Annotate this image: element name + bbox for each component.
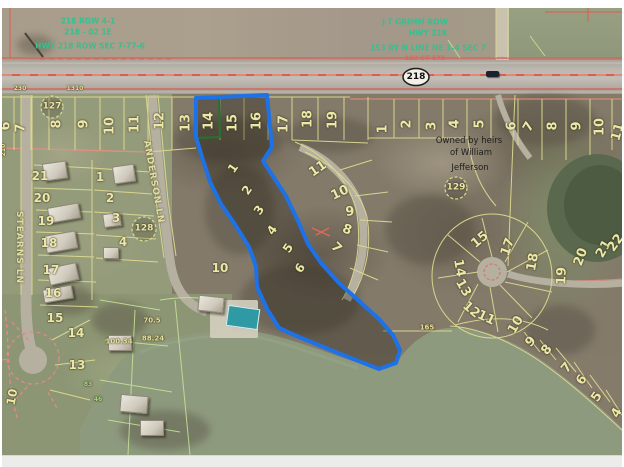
survey-note-tl-line1: 218 RGW 4-1 bbox=[61, 17, 116, 25]
lot-number: 13 bbox=[453, 277, 473, 299]
survey-note-tm-line3: 153 RY N LINE NE 1-4 SEC 7 bbox=[370, 44, 486, 52]
lot-number: 9 bbox=[523, 334, 539, 350]
map-screenshot: 6789101112131415161718191234567891011123… bbox=[0, 0, 624, 467]
dimension-label: 230 bbox=[14, 86, 27, 92]
owner-note-line1: Owned by heirs bbox=[436, 137, 502, 146]
lot-number: 7 bbox=[521, 120, 537, 134]
dimension-label: 165 bbox=[420, 325, 435, 332]
lot-number: 4 bbox=[265, 223, 280, 237]
lot-number: 6 bbox=[506, 121, 519, 130]
lot-number: 8 bbox=[51, 119, 64, 128]
lot-number: 10 bbox=[506, 314, 526, 336]
lot-number: 18 bbox=[41, 237, 58, 249]
dimension-label: 1310 bbox=[67, 86, 84, 92]
lot-number: 7 bbox=[559, 360, 575, 375]
lot-number: 6 bbox=[574, 373, 590, 388]
parcel-index-number[interactable]: 128 bbox=[135, 225, 154, 234]
lot-number: 4 bbox=[119, 236, 127, 248]
lot-number: 14 bbox=[68, 327, 85, 339]
lot-number: 8 bbox=[547, 121, 560, 130]
lot-number: 18 bbox=[525, 252, 541, 272]
lot-number: 17 bbox=[278, 115, 291, 133]
lot-number: 6 bbox=[2, 121, 13, 130]
lot-number: 16 bbox=[45, 287, 62, 299]
lot-number: 18 bbox=[302, 110, 315, 128]
lot-number: 10 bbox=[104, 117, 117, 135]
lot-number: 3 bbox=[426, 121, 439, 130]
owner-note-line3: Jefferson bbox=[451, 164, 488, 173]
lot-number: 2 bbox=[401, 119, 414, 128]
lot-number: 20 bbox=[34, 192, 51, 204]
lot-number: 17 bbox=[499, 236, 517, 257]
lot-number: 11 bbox=[307, 158, 329, 179]
lot-number: 1 bbox=[377, 124, 390, 133]
lot-number: 11 bbox=[475, 308, 497, 327]
dimension-label: 210 bbox=[2, 144, 7, 157]
survey-note-tm-line4: 123 ST 575 bbox=[405, 55, 446, 62]
lot-number: 21 bbox=[32, 170, 49, 182]
label-layer: 6789101112131415161718191234567891011123… bbox=[2, 8, 622, 455]
lot-number: 9 bbox=[345, 205, 355, 219]
lot-number: 3 bbox=[112, 212, 120, 224]
lot-number: 15 bbox=[469, 229, 491, 251]
dimension-label: 46 bbox=[94, 397, 102, 403]
street-label-stearns: STEARNS LN bbox=[14, 211, 23, 284]
lot-number: 19 bbox=[327, 111, 340, 129]
parcel-index-number[interactable]: 127 bbox=[43, 103, 62, 112]
lot-number: 16 bbox=[251, 112, 264, 130]
lot-number: 19 bbox=[555, 267, 569, 286]
lot-number: 5 bbox=[474, 119, 487, 128]
lot-number: 17 bbox=[43, 264, 60, 276]
survey-note-tm-line2: HWY 218 bbox=[409, 29, 447, 37]
lot-number: 6 bbox=[293, 261, 308, 275]
dimension-label: 70.5 bbox=[143, 318, 160, 325]
lot-number: 14 bbox=[203, 112, 216, 130]
lot-number: 14 bbox=[451, 258, 467, 278]
parcel-index-number[interactable]: 129 bbox=[447, 184, 466, 193]
lot-number: 15 bbox=[47, 312, 64, 324]
lot-number: 10 bbox=[329, 183, 351, 202]
lot-number: 1 bbox=[96, 171, 104, 183]
frame-bottom bbox=[0, 455, 624, 467]
lot-number: 11 bbox=[129, 115, 142, 133]
lot-number: 10 bbox=[212, 262, 229, 274]
survey-note-tm-line1: J T GRIMM ROW bbox=[382, 18, 448, 26]
lot-number: 13 bbox=[69, 359, 86, 371]
lot-number: 4 bbox=[449, 119, 462, 128]
lot-number: 9 bbox=[571, 121, 584, 130]
lot-number: 4 bbox=[609, 406, 622, 420]
survey-note-tl-line3: HWY 218 ROW SEC 7-77-6 bbox=[35, 42, 145, 50]
lot-number: 8 bbox=[341, 222, 354, 237]
lot-number: 20 bbox=[572, 246, 590, 267]
lot-number: 10 bbox=[5, 388, 20, 407]
dimension-label: 83 bbox=[84, 382, 92, 388]
lot-number: 1 bbox=[226, 161, 241, 175]
frame-left bbox=[0, 0, 2, 467]
lot-number: 15 bbox=[227, 114, 240, 132]
lot-number: 8 bbox=[539, 342, 555, 357]
lot-number: 2 bbox=[240, 183, 255, 197]
lot-number: 7 bbox=[15, 123, 28, 132]
dimension-label: 88.24 bbox=[142, 336, 164, 343]
dimension-label: 100.34 bbox=[105, 339, 132, 346]
lot-number: 7 bbox=[328, 240, 344, 256]
lot-number: 12 bbox=[154, 112, 167, 130]
frame-top bbox=[0, 0, 624, 8]
lot-number: 11 bbox=[609, 122, 622, 143]
lot-number: 2 bbox=[106, 192, 114, 204]
lot-number: 5 bbox=[589, 390, 605, 405]
map-canvas[interactable]: 6789101112131415161718191234567891011123… bbox=[2, 8, 622, 455]
lot-number: 3 bbox=[252, 203, 267, 217]
lot-number: 10 bbox=[594, 118, 607, 136]
lot-number: 19 bbox=[38, 215, 55, 227]
lot-number: 13 bbox=[180, 114, 193, 132]
lot-number: 9 bbox=[78, 119, 91, 128]
route-shield-number: 218 bbox=[407, 72, 426, 82]
survey-note-tl-line2: 218 - 02 1E bbox=[64, 28, 111, 36]
owner-note-line2: of William bbox=[450, 149, 492, 158]
lot-number: 5 bbox=[281, 241, 296, 255]
